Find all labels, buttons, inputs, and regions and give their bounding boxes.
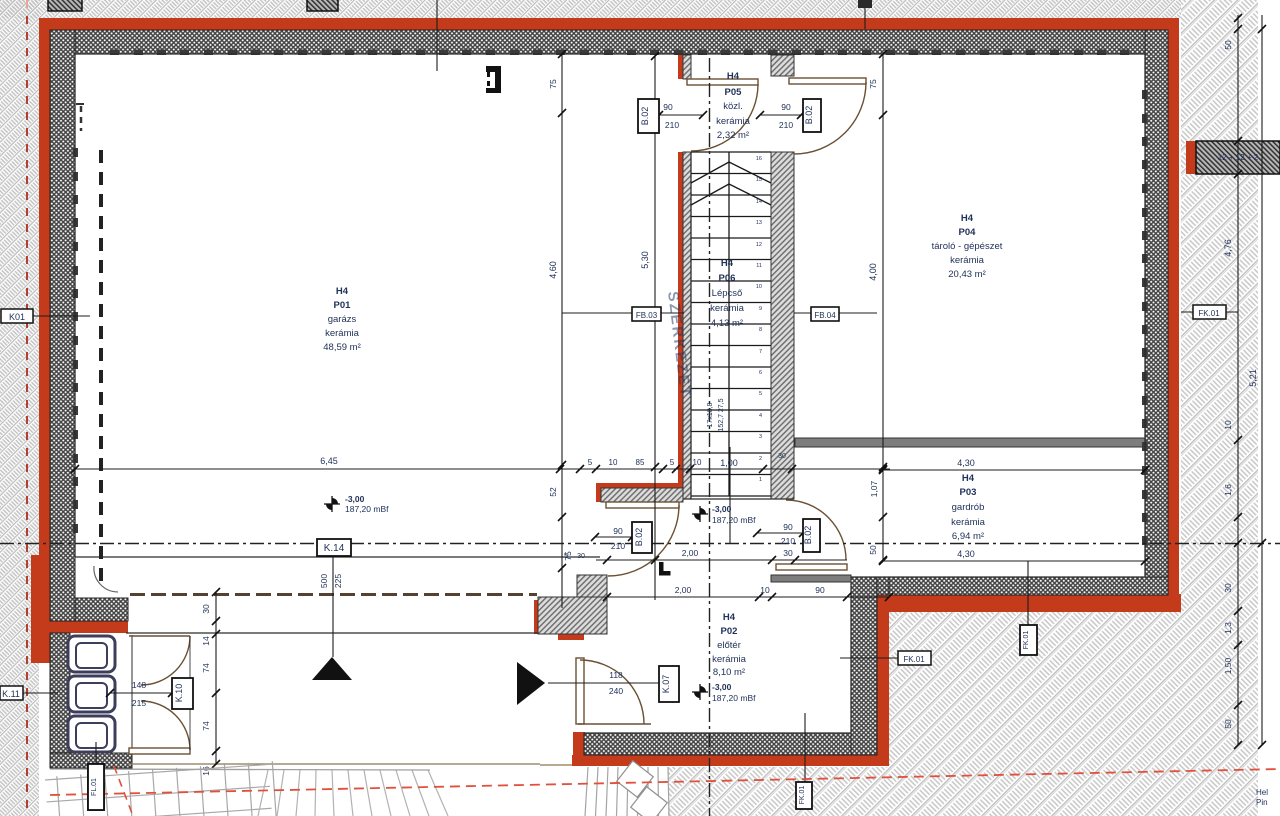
svg-text:P02: P02 [721, 626, 738, 637]
svg-text:P06: P06 [719, 273, 736, 284]
svg-text:K.07: K.07 [661, 675, 671, 694]
svg-text:10: 10 [756, 284, 762, 290]
svg-text:75: 75 [868, 79, 878, 89]
svg-text:-3,00: -3,00 [345, 494, 365, 504]
svg-text:20,43 m²: 20,43 m² [948, 269, 986, 280]
svg-text:5: 5 [588, 458, 593, 467]
svg-text:kerámia: kerámia [951, 517, 986, 528]
svg-text:187,20 mBf: 187,20 mBf [712, 693, 756, 703]
svg-text:14: 14 [756, 199, 762, 205]
svg-text:90: 90 [663, 102, 673, 112]
svg-text:4,13 m²: 4,13 m² [711, 318, 743, 329]
svg-text:85: 85 [636, 458, 645, 467]
svg-text:50: 50 [1223, 719, 1233, 729]
svg-text:5,30: 5,30 [640, 251, 650, 269]
svg-text:4,30: 4,30 [957, 549, 975, 559]
svg-text:9: 9 [759, 306, 762, 312]
svg-text:210: 210 [665, 120, 679, 130]
svg-text:FB.03: FB.03 [636, 311, 658, 320]
svg-text:7: 7 [759, 349, 762, 355]
svg-text:1,3: 1,3 [1223, 622, 1233, 634]
svg-text:1,00: 1,00 [720, 458, 738, 468]
svg-text:2,00: 2,00 [682, 548, 699, 558]
svg-text:3: 3 [759, 434, 762, 440]
svg-text:tároló - gépészet: tároló - gépészet [932, 241, 1003, 252]
svg-text:12: 12 [756, 242, 762, 248]
svg-text:187,20 mBf: 187,20 mBf [712, 515, 756, 525]
svg-text:közl.: közl. [723, 101, 743, 112]
svg-text:garázs: garázs [328, 314, 357, 325]
svg-text:4,00: 4,00 [868, 263, 878, 281]
svg-text:-3,00: -3,00 [712, 682, 732, 692]
svg-text:K01: K01 [9, 312, 25, 322]
svg-text:2,32 m²: 2,32 m² [717, 130, 749, 141]
svg-text:30: 30 [577, 553, 585, 560]
svg-text:210: 210 [611, 541, 625, 551]
svg-text:1,50: 1,50 [1223, 657, 1233, 674]
svg-text:-3,00: -3,00 [712, 504, 732, 514]
svg-text:1,6: 1,6 [1223, 484, 1233, 496]
svg-text:152,7 27,5: 152,7 27,5 [718, 398, 725, 431]
svg-text:FK.01: FK.01 [799, 786, 806, 805]
svg-text:75: 75 [563, 551, 573, 561]
svg-text:P03: P03 [960, 487, 977, 498]
svg-text:K.11: K.11 [2, 689, 20, 699]
svg-text:118: 118 [609, 670, 623, 680]
svg-text:48,59 m²: 48,59 m² [323, 342, 361, 353]
svg-text:74: 74 [201, 721, 211, 731]
svg-text:8: 8 [759, 327, 762, 333]
svg-text:H4: H4 [336, 286, 349, 297]
svg-text:16: 16 [201, 766, 211, 776]
svg-text:FK.01: FK.01 [1198, 309, 1220, 318]
svg-text:215: 215 [132, 698, 146, 708]
svg-text:kerámia: kerámia [950, 255, 985, 266]
svg-text:P05: P05 [725, 87, 743, 98]
svg-text:6,94 m²: 6,94 m² [952, 531, 984, 542]
svg-text:8,10 m²: 8,10 m² [713, 667, 745, 678]
svg-text:10: 10 [1223, 420, 1233, 430]
svg-text:210: 210 [779, 120, 793, 130]
svg-text:B.02: B.02 [803, 526, 813, 545]
svg-text:74: 74 [201, 663, 211, 673]
svg-text:H4: H4 [723, 612, 736, 623]
svg-text:gardrób: gardrób [952, 502, 985, 513]
svg-text:5: 5 [759, 391, 762, 397]
svg-text:50: 50 [1223, 40, 1233, 50]
svg-text:Pin: Pin [1256, 798, 1268, 807]
svg-text:4,30: 4,30 [957, 458, 975, 468]
svg-text:kerámia: kerámia [712, 654, 747, 665]
svg-text:H4: H4 [961, 213, 974, 224]
svg-text:225: 225 [333, 574, 343, 588]
svg-text:90: 90 [783, 522, 793, 532]
svg-text:10: 10 [693, 458, 702, 467]
svg-text:FK.01: FK.01 [1023, 631, 1030, 650]
svg-text:148: 148 [132, 680, 146, 690]
svg-text:kerámia: kerámia [716, 116, 751, 127]
svg-text:1,07: 1,07 [869, 480, 879, 497]
svg-text:B.02: B.02 [634, 528, 644, 547]
svg-text:2,00: 2,00 [675, 585, 692, 595]
svg-text:30: 30 [1223, 583, 1233, 593]
svg-text:12 + 12 + 2: 12 + 12 + 2 [1218, 153, 1259, 162]
svg-text:10: 10 [609, 458, 618, 467]
svg-text:H4: H4 [727, 71, 740, 82]
svg-text:500: 500 [319, 574, 329, 588]
svg-text:4,60: 4,60 [548, 261, 558, 279]
svg-text:16: 16 [756, 156, 762, 162]
svg-text:187,20 mBf: 187,20 mBf [345, 504, 389, 514]
svg-text:30: 30 [201, 604, 211, 614]
svg-text:kerámia: kerámia [325, 328, 360, 339]
svg-text:210: 210 [781, 536, 795, 546]
svg-text:B.02: B.02 [804, 106, 814, 125]
svg-text:5: 5 [670, 458, 675, 467]
svg-text:B.02: B.02 [640, 107, 650, 126]
svg-text:FB.04: FB.04 [814, 311, 836, 320]
svg-text:240: 240 [609, 686, 623, 696]
svg-text:előtér: előtér [717, 640, 741, 651]
svg-text:FK.01: FK.01 [903, 655, 925, 664]
svg-text:90: 90 [781, 102, 791, 112]
svg-text:kerámia: kerámia [710, 303, 745, 314]
svg-text:K.10: K.10 [174, 684, 184, 703]
svg-text:75: 75 [548, 79, 558, 89]
svg-text:H4: H4 [721, 258, 734, 269]
svg-text:Hel: Hel [1256, 788, 1268, 797]
svg-text:15: 15 [756, 177, 762, 183]
svg-text:90: 90 [815, 585, 825, 595]
svg-text:52: 52 [548, 487, 558, 497]
svg-text:P01: P01 [334, 300, 352, 311]
svg-text:13: 13 [756, 220, 762, 226]
svg-text:K.14: K.14 [324, 543, 345, 554]
svg-text:30: 30 [783, 548, 793, 558]
svg-text:17x18,8: 17x18,8 [707, 402, 714, 427]
svg-text:Lépcső: Lépcső [712, 288, 743, 299]
svg-text:2: 2 [759, 456, 762, 462]
svg-text:5,21: 5,21 [1248, 369, 1258, 387]
svg-text:FL.01: FL.01 [91, 778, 98, 796]
svg-text:P04: P04 [959, 227, 977, 238]
svg-text:11: 11 [756, 263, 762, 269]
svg-text:30: 30 [778, 453, 786, 460]
svg-text:6: 6 [759, 370, 762, 376]
svg-text:4,76: 4,76 [1223, 239, 1233, 257]
svg-text:10: 10 [760, 585, 770, 595]
svg-text:H4: H4 [962, 473, 975, 484]
svg-text:50: 50 [868, 545, 878, 555]
svg-text:4: 4 [759, 413, 762, 419]
svg-text:1: 1 [759, 477, 762, 483]
svg-text:14: 14 [201, 636, 211, 646]
svg-text:90: 90 [613, 526, 623, 536]
svg-text:6,45: 6,45 [320, 456, 338, 466]
